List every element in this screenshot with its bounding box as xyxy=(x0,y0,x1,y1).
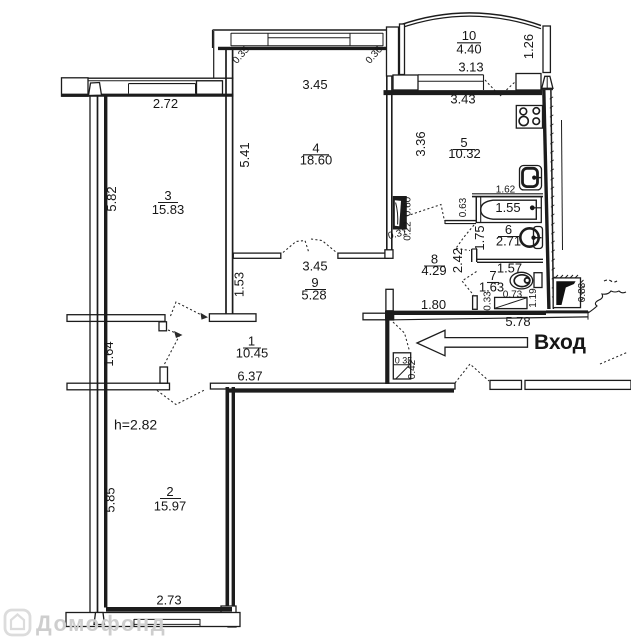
svg-text:5.28: 5.28 xyxy=(301,288,326,303)
svg-text:4.29: 4.29 xyxy=(421,263,446,278)
svg-text:3.43: 3.43 xyxy=(450,92,475,107)
svg-text:1.57: 1.57 xyxy=(497,261,522,276)
svg-text:1.64: 1.64 xyxy=(101,341,116,366)
svg-text:0.33: 0.33 xyxy=(483,291,494,311)
svg-text:18.60: 18.60 xyxy=(300,153,333,168)
svg-text:4.40: 4.40 xyxy=(456,42,481,57)
svg-text:5.82: 5.82 xyxy=(104,186,119,211)
svg-text:5.41: 5.41 xyxy=(237,142,252,167)
svg-text:1.53: 1.53 xyxy=(232,272,247,297)
svg-text:15.97: 15.97 xyxy=(154,499,187,514)
svg-text:1.19: 1.19 xyxy=(528,288,539,308)
svg-text:0.63: 0.63 xyxy=(458,197,469,217)
svg-text:3: 3 xyxy=(164,188,171,203)
svg-text:1.75: 1.75 xyxy=(472,225,487,250)
svg-text:1.80: 1.80 xyxy=(421,297,446,312)
svg-text:3.36: 3.36 xyxy=(413,131,428,156)
svg-text:1.26: 1.26 xyxy=(521,34,536,59)
svg-text:3.45: 3.45 xyxy=(302,77,327,92)
svg-text:0.60: 0.60 xyxy=(402,196,413,216)
svg-text:5.85: 5.85 xyxy=(103,487,118,512)
svg-text:2: 2 xyxy=(166,484,173,499)
svg-text:2.73: 2.73 xyxy=(156,593,181,608)
svg-text:2.42: 2.42 xyxy=(450,248,465,273)
svg-text:5.78: 5.78 xyxy=(505,314,530,329)
svg-text:1.55: 1.55 xyxy=(495,200,520,215)
svg-text:h=2.82: h=2.82 xyxy=(114,417,157,433)
svg-text:Домофонд: Домофонд xyxy=(36,611,166,636)
svg-text:15.83: 15.83 xyxy=(152,202,185,217)
svg-text:0.83: 0.83 xyxy=(577,282,588,302)
svg-text:6.37: 6.37 xyxy=(237,369,262,384)
svg-text:Вход: Вход xyxy=(534,331,586,354)
svg-text:3.13: 3.13 xyxy=(458,60,483,75)
svg-text:2.72: 2.72 xyxy=(153,96,178,111)
svg-text:10.32: 10.32 xyxy=(448,146,481,161)
svg-text:2.71: 2.71 xyxy=(496,234,521,249)
svg-text:10.45: 10.45 xyxy=(236,346,269,361)
svg-text:3.45: 3.45 xyxy=(302,259,327,274)
svg-text:1.62: 1.62 xyxy=(496,185,516,196)
svg-text:0.42: 0.42 xyxy=(407,359,418,379)
svg-text:0.73: 0.73 xyxy=(503,290,523,301)
